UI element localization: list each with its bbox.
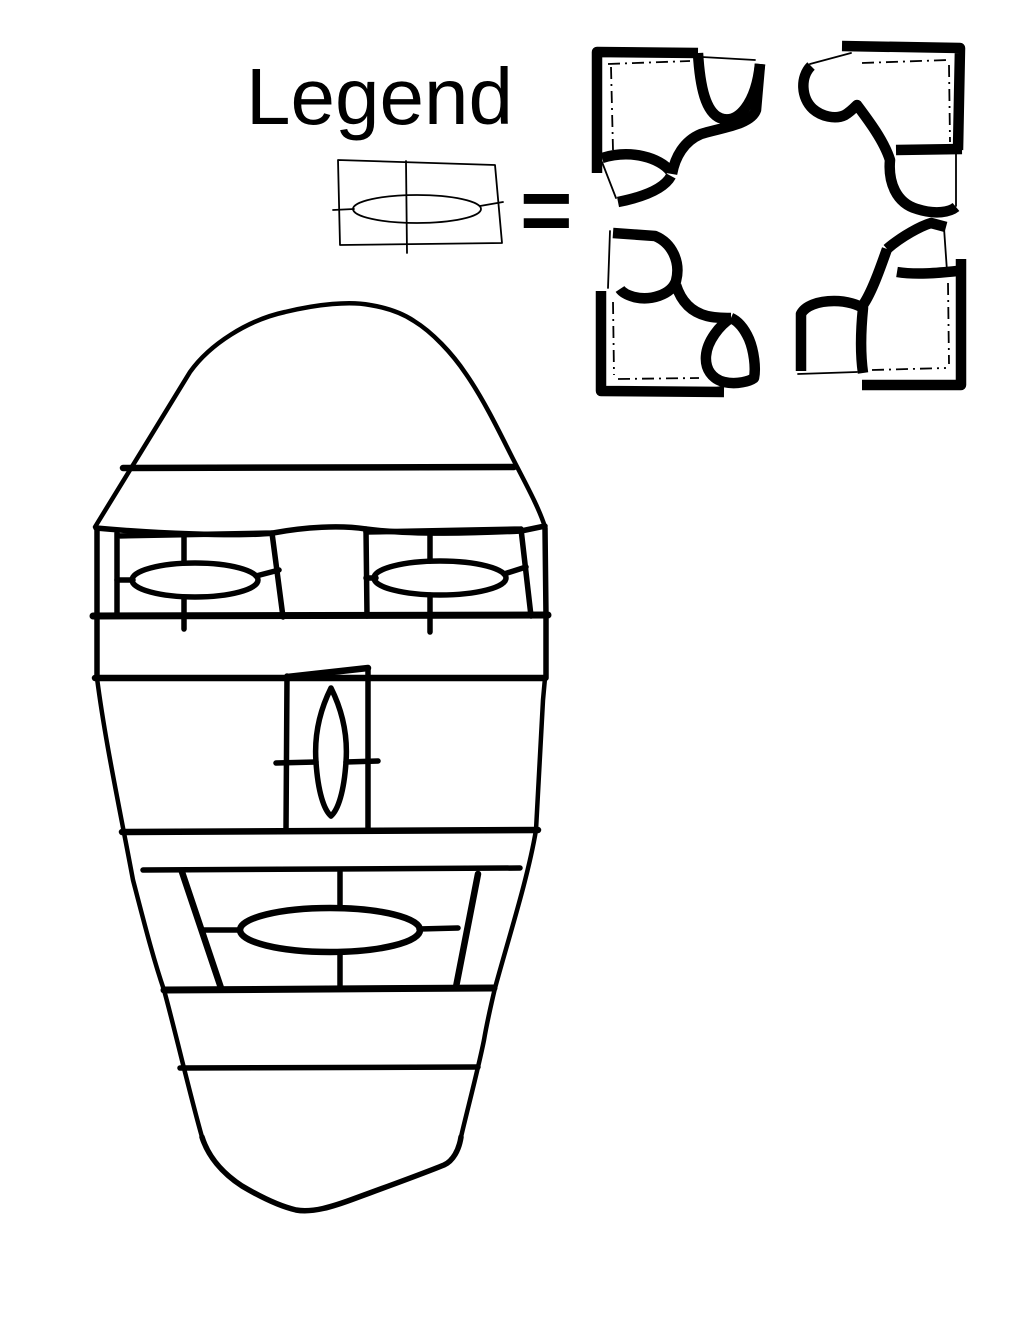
knob-upper-edge <box>602 154 670 171</box>
drawing-canvas: Legend = <box>0 0 1020 1320</box>
equals-sign: = <box>520 161 573 261</box>
knob-s-cup-curve <box>803 66 956 212</box>
join-line <box>810 53 956 206</box>
cheek-strip-walls <box>97 616 546 678</box>
side-knob-leaf <box>706 318 755 383</box>
join-line <box>608 231 753 391</box>
chin-bottom-outline <box>202 1137 461 1211</box>
mouth-side-stubs <box>204 928 458 930</box>
eye-ellipse <box>374 561 506 595</box>
guide-dashdot <box>613 302 699 379</box>
symbol-ellipse <box>353 195 481 223</box>
symbol-right-stub <box>480 202 503 206</box>
inner-s-curve <box>863 249 887 305</box>
legend-title: Legend <box>246 52 513 141</box>
puzzle-corner-bottom-left <box>601 231 755 392</box>
top-knob <box>613 233 677 298</box>
nose-side-stubs <box>276 761 378 763</box>
legend-symbol-pictogram <box>333 160 503 253</box>
head-dome-outline <box>95 303 545 527</box>
nose-lens-ellipse <box>316 688 347 816</box>
side-cup <box>801 301 863 373</box>
corner-border <box>842 46 960 150</box>
hand-drawn-diagram: Legend = <box>0 0 1020 1320</box>
chin-line <box>180 1067 478 1068</box>
mouth-band-top-line <box>143 868 520 870</box>
puzzle-corner-top-left <box>597 52 760 202</box>
mouth-band-bottom-line <box>164 988 494 990</box>
symbol-vertical-line <box>406 161 407 253</box>
symbol-rectangle <box>338 160 502 245</box>
nose-symbol <box>276 668 378 831</box>
inner-s-curve <box>676 285 731 318</box>
middle-box-wall <box>366 529 367 616</box>
puzzle-corner-bottom-right <box>798 223 961 385</box>
guide-dashdot <box>872 283 949 370</box>
nose-bottom-line <box>122 830 538 832</box>
eye-ellipse <box>132 563 258 597</box>
legend-section: Legend = <box>246 46 962 392</box>
forehead-line <box>123 467 514 468</box>
eye-band <box>93 526 548 632</box>
band-bottom-line <box>93 615 548 616</box>
symbol-left-stub <box>333 209 354 210</box>
figure-drawing <box>93 303 548 1211</box>
guide-dashdot <box>608 61 690 150</box>
puzzle-corner-top-right <box>803 46 962 212</box>
mouth-ellipse <box>240 908 420 952</box>
bottom-edge <box>896 149 962 150</box>
top-edge <box>897 271 957 274</box>
band-outer-walls <box>97 528 546 616</box>
mouth-symbol <box>143 868 520 990</box>
top-fin-knob <box>887 223 946 249</box>
knob-lower-edge <box>618 176 671 202</box>
